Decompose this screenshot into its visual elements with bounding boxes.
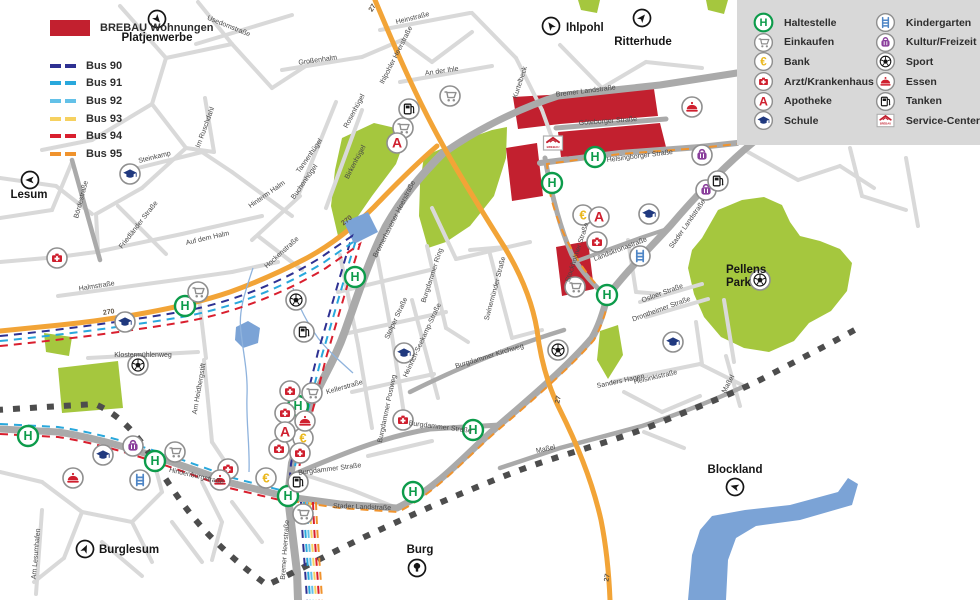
legend-item-bus-line: Bus 93	[50, 110, 213, 128]
sport-icon	[548, 340, 568, 360]
place-label: Blockland	[708, 464, 763, 476]
tanken-icon	[708, 171, 728, 191]
bus-line-label: Bus 90	[86, 60, 122, 72]
schule-icon	[93, 445, 113, 465]
arzt-icon	[275, 403, 295, 423]
legend-item-label: Sport	[906, 56, 933, 68]
brebau-city-map: H € A	[0, 0, 980, 600]
schule-icon	[663, 332, 683, 352]
legend-item-label: Schule	[784, 115, 818, 127]
brebau-icon	[544, 136, 563, 150]
haltestelle-icon	[542, 173, 562, 193]
einkaufen-icon	[293, 504, 313, 524]
legend-poi-panel: HaltestelleEinkaufenBankArzt/Krankenhaus…	[737, 0, 980, 145]
kultur-icon	[123, 436, 143, 456]
einkaufen-icon	[188, 282, 208, 302]
bus-line-swatch	[50, 64, 76, 68]
haltestelle-icon	[403, 482, 423, 502]
haltestelle-icon	[145, 451, 165, 471]
place-label: Pellens	[726, 264, 766, 276]
legend-item-einkaufen: Einkaufen	[752, 33, 874, 53]
legend-item-sport: Sport	[874, 52, 980, 72]
bus-line-label: Bus 92	[86, 95, 122, 107]
legend-item-label: Bank	[784, 56, 810, 68]
essen-icon	[682, 97, 702, 117]
sport-icon	[286, 290, 306, 310]
brebau-icon	[874, 109, 897, 132]
arzt-icon	[280, 381, 300, 401]
essen-icon	[63, 468, 83, 488]
bus-line-label: Bus 93	[86, 113, 122, 125]
street-label: Klostermühlenweg	[114, 352, 172, 359]
schule-icon	[639, 204, 659, 224]
arzt-icon	[47, 248, 67, 268]
place-label: Burglesum	[99, 544, 159, 556]
legend-item-label: Kindergarten	[906, 17, 971, 29]
tanken-icon	[399, 99, 419, 119]
apotheke-icon	[589, 207, 609, 227]
legend-item-kultur: Kultur/Freizeit	[874, 33, 980, 53]
road-number-label: 27	[603, 573, 611, 582]
legend-item-bank: Bank	[752, 52, 874, 72]
legend-item-label: Tanken	[906, 95, 942, 107]
bus-line-swatch	[50, 117, 76, 121]
place-arrow-icon	[22, 172, 39, 189]
bus-line-swatch	[50, 81, 76, 85]
legend-item-bus-line: Bus 92	[50, 92, 213, 110]
bus-line-label: Bus 95	[86, 148, 122, 160]
tanken-icon	[294, 322, 314, 342]
legend-item-bus-line: Bus 91	[50, 75, 213, 93]
legend-column: KindergartenKultur/FreizeitSportEssenTan…	[874, 13, 980, 145]
schule-icon	[120, 164, 140, 184]
haltestelle-icon	[585, 147, 605, 167]
legend-item-arzt: Arzt/Krankenhaus	[752, 72, 874, 92]
bus-line-swatch	[50, 152, 76, 156]
place-label: Ihlpohl	[566, 22, 604, 34]
apotheke-icon	[387, 133, 407, 153]
legend-item-haltestelle: Haltestelle	[752, 13, 874, 33]
einkaufen-icon	[302, 383, 322, 403]
kindergarten-icon	[130, 470, 150, 490]
place-label: Park	[726, 277, 752, 289]
einkaufen-icon	[440, 86, 460, 106]
legend-item-kindergarten: Kindergarten	[874, 13, 980, 33]
bus-line-swatch	[50, 99, 76, 103]
legend-item-essen: Essen	[874, 72, 980, 92]
legend-item-brebau-wohnungen: BREBAU Wohnungen	[50, 20, 213, 36]
apotheke-icon	[275, 422, 295, 442]
haltestelle-icon	[597, 285, 617, 305]
legend-item-label: Kultur/Freizeit	[906, 36, 977, 48]
legend-item-apotheke: Apotheke	[752, 91, 874, 111]
place-label: Ritterhude	[614, 36, 672, 48]
bus-line-label: Bus 91	[86, 77, 122, 89]
place-label: Lesum	[10, 189, 47, 201]
legend-item-schule: Schule	[752, 111, 874, 131]
brebau-color-swatch	[50, 20, 90, 36]
legend-item-label: Essen	[906, 76, 937, 88]
legend-item-label: Apotheke	[784, 95, 832, 107]
legend-item-label: Haltestelle	[784, 17, 837, 29]
legend-item-bus-line: Bus 90	[50, 57, 213, 75]
bus-lines-legend: Bus 90Bus 91Bus 92Bus 93Bus 94Bus 95	[50, 57, 213, 163]
place-label: Burg	[407, 544, 434, 556]
bank-icon	[256, 468, 276, 488]
kultur-icon	[692, 145, 712, 165]
bus-line-swatch	[50, 134, 76, 138]
legend-item-brebau: Service-Center	[874, 111, 980, 131]
legend-brebau-bus: BREBAU Wohnungen Bus 90Bus 91Bus 92Bus 9…	[50, 20, 213, 163]
schule-icon	[115, 312, 135, 332]
haltestelle-icon	[18, 426, 38, 446]
essen-icon	[295, 411, 315, 431]
einkaufen-icon	[165, 442, 185, 462]
bus-line-label: Bus 94	[86, 130, 122, 142]
haltestelle-icon	[345, 267, 365, 287]
legend-item-bus-line: Bus 95	[50, 145, 213, 163]
arzt-icon	[290, 443, 310, 463]
legend-item-label: Arzt/Krankenhaus	[784, 76, 874, 88]
legend-column: HaltestelleEinkaufenBankArzt/Krankenhaus…	[752, 13, 874, 145]
legend-item-label: Service-Center	[906, 115, 980, 127]
brebau-legend-label: BREBAU Wohnungen	[100, 22, 213, 34]
legend-item-bus-line: Bus 94	[50, 127, 213, 145]
arzt-icon	[587, 232, 607, 252]
legend-item-tanken: Tanken	[874, 91, 980, 111]
schule-icon	[752, 109, 775, 132]
kindergarten-icon	[630, 246, 650, 266]
legend-item-label: Einkaufen	[784, 36, 834, 48]
tree-icon	[409, 560, 426, 577]
